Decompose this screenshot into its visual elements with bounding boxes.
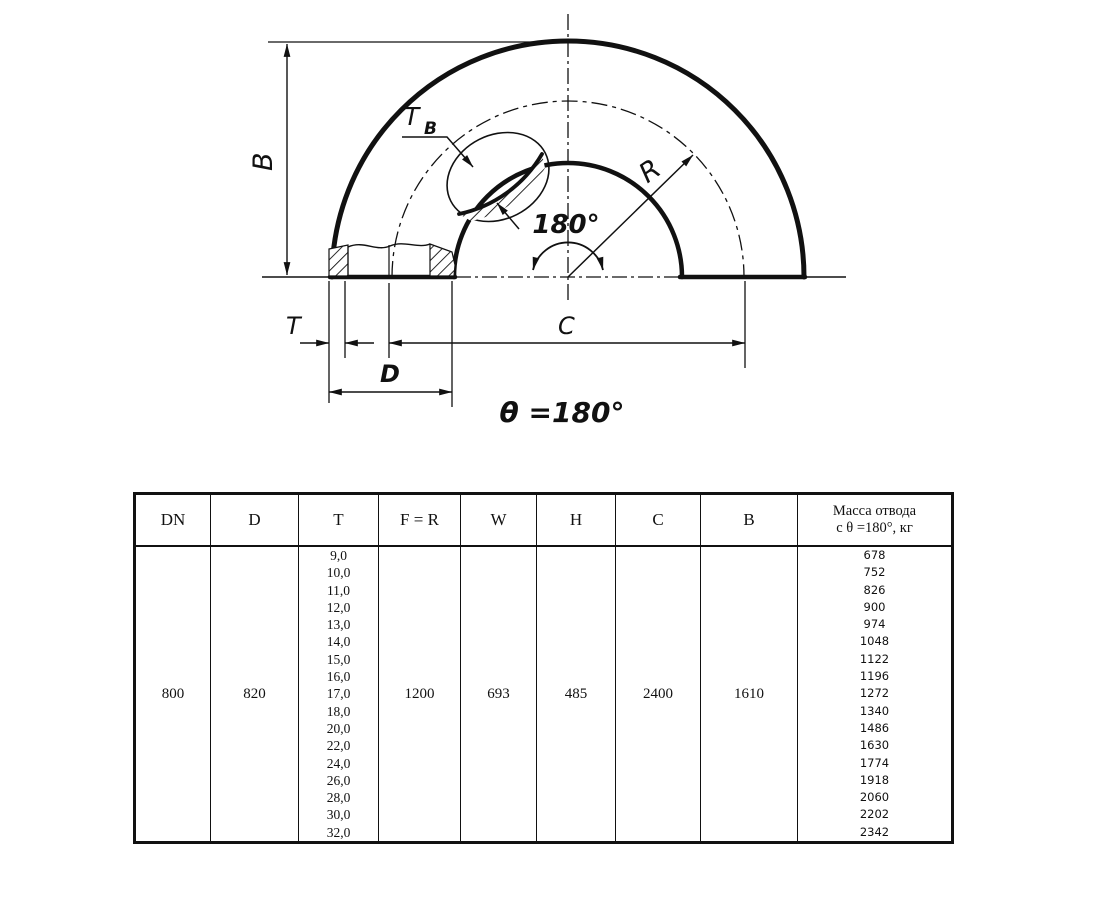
mass-values-list: 678 752 826 900 974 1048 1122 1196 1272 … — [798, 547, 951, 841]
pipe-bend-diagram: T B R 180° B T C D θ =180° — [0, 0, 1100, 480]
col-header-dn: DN — [135, 494, 211, 547]
header-row: DN D T F = R W H C B Масса отвода с θ =1… — [135, 494, 953, 547]
radius-label: R — [633, 153, 666, 189]
col-header-h: H — [537, 494, 616, 547]
dimension-B: B — [248, 42, 570, 275]
col-header-d: D — [211, 494, 299, 547]
cell-w: 693 — [461, 546, 537, 843]
mass-header-line2: с θ =180°, кг — [798, 520, 951, 537]
cell-h: 485 — [537, 546, 616, 843]
dimension-D: D — [329, 360, 452, 392]
col-header-w: W — [461, 494, 537, 547]
d-label: D — [380, 360, 400, 388]
col-header-t: T — [299, 494, 379, 547]
col-header-mass: Масса отвода с θ =180°, кг — [798, 494, 953, 547]
cell-d: 820 — [211, 546, 299, 843]
col-header-c: C — [616, 494, 701, 547]
hatched-wall-inner — [430, 244, 455, 276]
tb-label-subscript: B — [424, 119, 437, 139]
dimensions-table: DN D T F = R W H C B Масса отвода с θ =1… — [133, 492, 954, 844]
col-header-fr: F = R — [379, 494, 461, 547]
cell-mass-list: 678 752 826 900 974 1048 1122 1196 1272 … — [798, 546, 953, 843]
cell-b: 1610 — [701, 546, 798, 843]
bottom-extension-lines — [329, 281, 745, 407]
tb-label: T — [404, 102, 421, 131]
mass-header-line1: Масса отвода — [798, 503, 951, 520]
theta-caption: θ =180° — [500, 396, 625, 429]
t-values-list: 9,0 10,0 11,0 12,0 13,0 14,0 15,0 16,0 1… — [299, 547, 378, 841]
cell-t-list: 9,0 10,0 11,0 12,0 13,0 14,0 15,0 16,0 1… — [299, 546, 379, 843]
hatched-wall-outer — [329, 245, 348, 276]
cell-c: 2400 — [616, 546, 701, 843]
tb-counter-arrow — [497, 203, 519, 229]
c-label: C — [558, 312, 575, 340]
col-header-b: B — [701, 494, 798, 547]
catalog-page: { "diagram": { "labels": { "B": "B", "T"… — [0, 0, 1100, 900]
b-label: B — [248, 152, 279, 171]
cell-dn: 800 — [135, 546, 211, 843]
t-label: T — [286, 312, 303, 340]
angle-label: 180° — [532, 210, 599, 240]
data-row: 800 820 9,0 10,0 11,0 12,0 13,0 14,0 15,… — [135, 546, 953, 843]
cell-fr: 1200 — [379, 546, 461, 843]
dimension-T: T — [286, 312, 374, 343]
dimension-C: C — [389, 312, 745, 343]
